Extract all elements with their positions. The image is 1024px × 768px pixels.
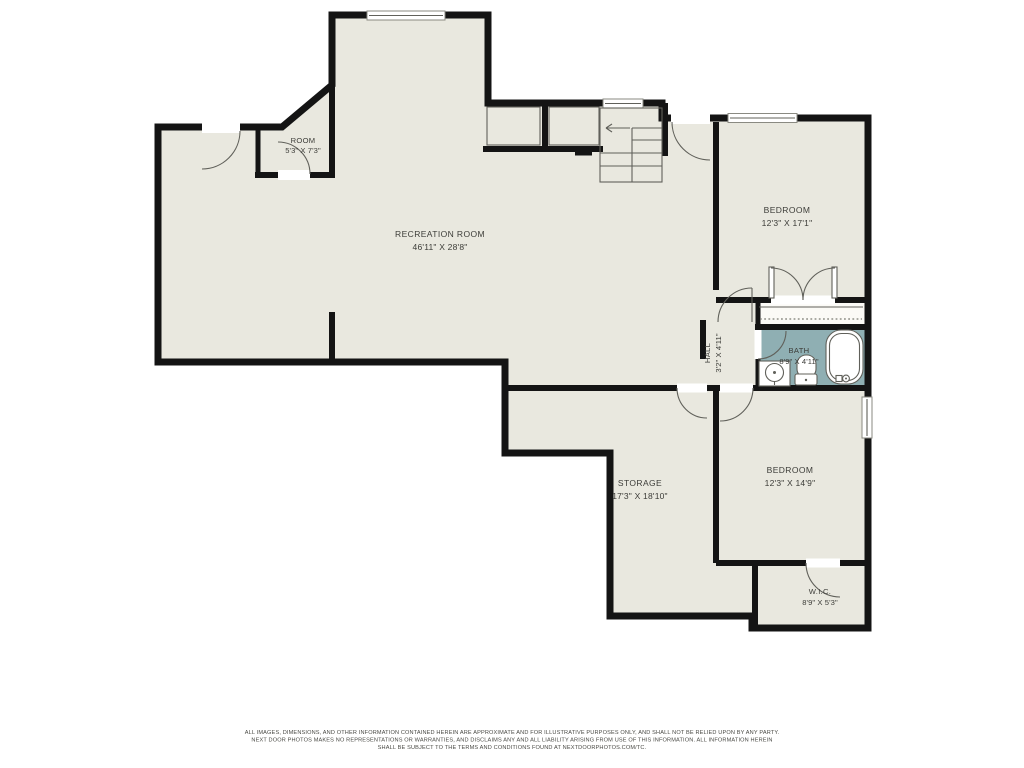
label-recreation-dims: 46'11" X 28'8" [413,242,468,252]
label-wic-name: W.I.C. [809,587,831,596]
disclaimer-line-1: ALL IMAGES, DIMENSIONS, AND OTHER INFORM… [245,730,780,736]
label-hall-dims: 3'2" X 4'11" [714,333,723,373]
label-bedroom1-name: BEDROOM [764,205,811,215]
bathtub [826,330,863,384]
label-storage-name: STORAGE [618,478,662,488]
window-recreation-top [367,11,445,20]
floor-plan: ROOM 5'3" X 7'3" RECREATION ROOM 46'11" … [0,0,1024,768]
label-bath-name: BATH [789,346,810,355]
disclaimer-line-3: SHALL BE SUBJECT TO THE TERMS AND CONDIT… [378,745,647,751]
label-bath-dims: 8'9" X 4'11" [779,357,819,366]
label-bedroom2-name: BEDROOM [767,465,814,475]
label-storage-dims: 17'3" X 18'10" [612,491,668,501]
label-room-dims: 5'3" X 7'3" [285,146,321,155]
label-room-name: ROOM [291,136,316,145]
label-hall-name: HALL [703,343,712,363]
window-stairs-top [603,99,643,108]
label-bedroom2-dims: 12'3" X 14'9" [765,478,816,488]
disclaimer-line-2: NEXT DOOR PHOTOS MAKES NO REPRESENTATION… [251,738,772,744]
label-recreation-name: RECREATION ROOM [395,229,485,239]
closet-floor [758,303,865,325]
label-wic-dims: 8'9" X 5'3" [802,598,838,607]
window-bedroom1-top [728,114,797,123]
label-bedroom1-dims: 12'3" X 17'1" [762,218,813,228]
floor-plan-page: ROOM 5'3" X 7'3" RECREATION ROOM 46'11" … [0,0,1024,768]
window-bedroom2-right [862,397,872,438]
